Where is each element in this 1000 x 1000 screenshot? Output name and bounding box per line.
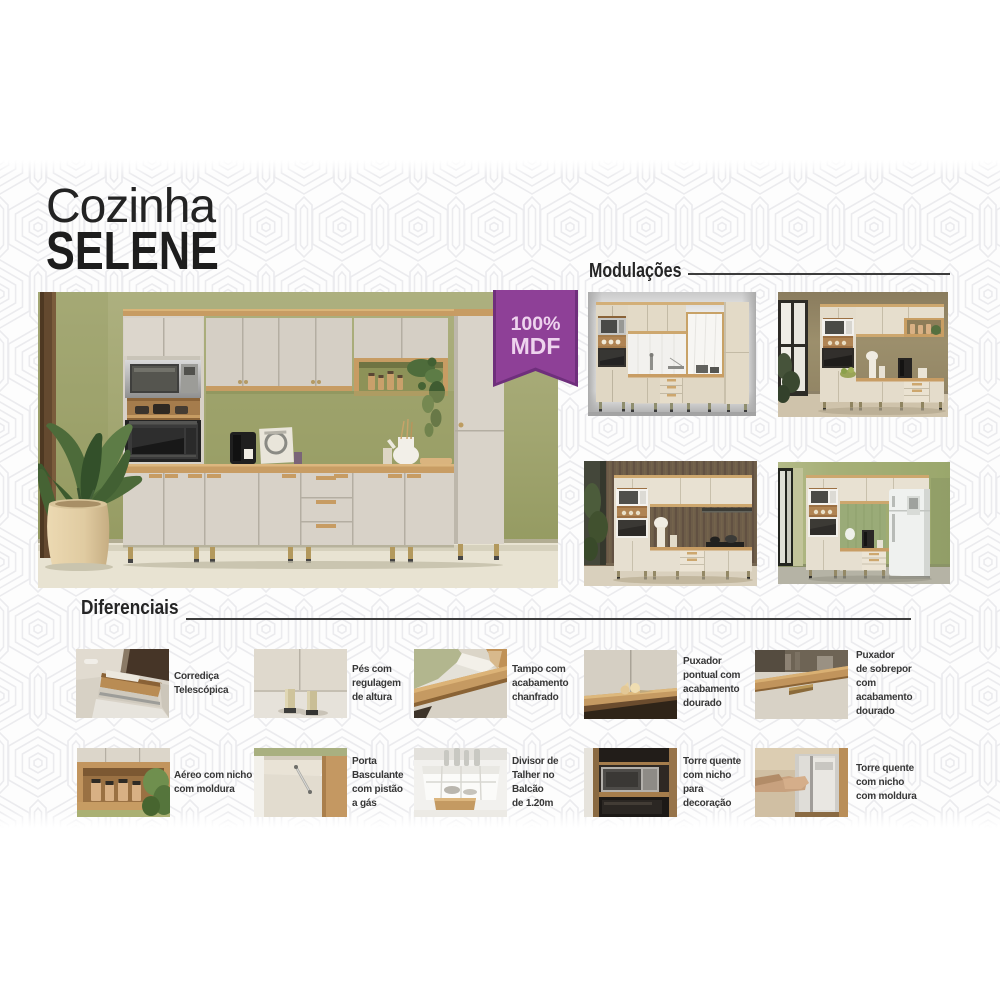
svg-text:MDF: MDF xyxy=(511,333,561,359)
svg-text:100%: 100% xyxy=(511,313,561,335)
